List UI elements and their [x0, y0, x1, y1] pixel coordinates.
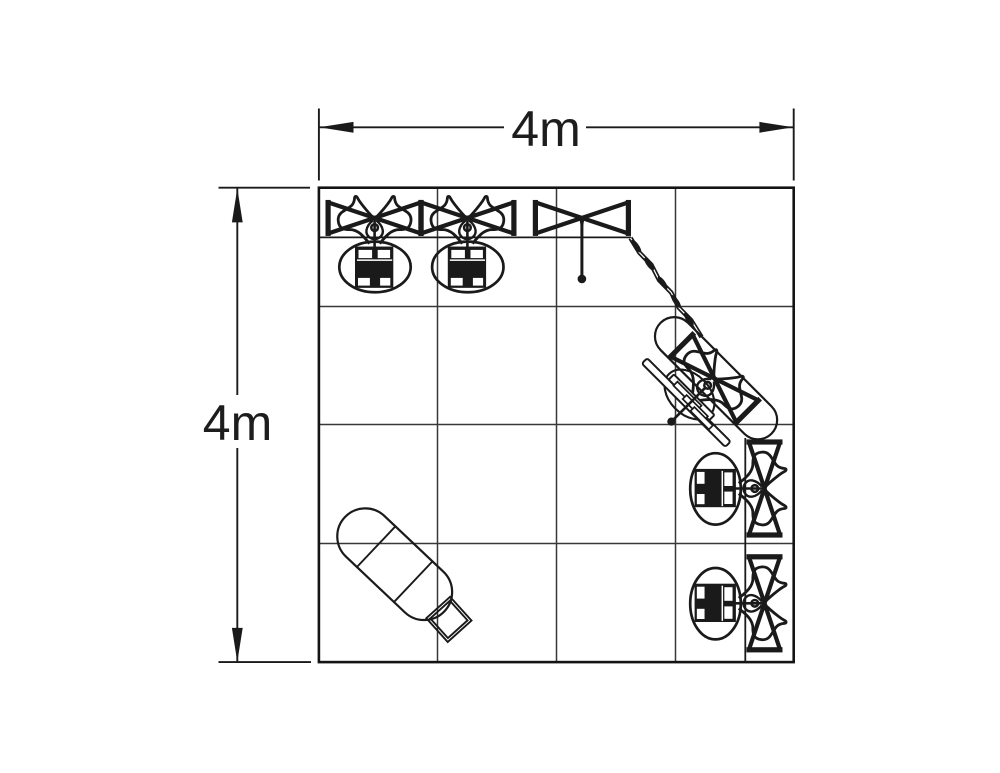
svg-text:4m: 4m: [203, 395, 272, 451]
svg-text:4m: 4m: [511, 101, 580, 157]
